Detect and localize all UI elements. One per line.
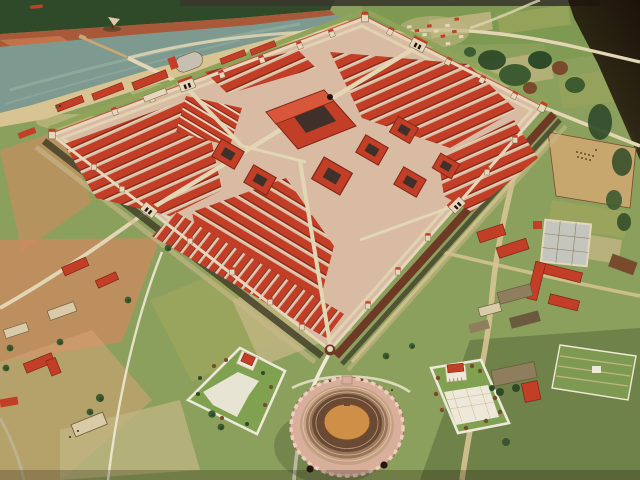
wall-tower: [484, 167, 489, 175]
tree: [3, 365, 10, 372]
tree: [165, 245, 172, 252]
autumn-tree: [552, 61, 568, 75]
tiny-house: [422, 33, 427, 37]
painted-tree: [588, 104, 612, 140]
wall-tower: [395, 267, 400, 275]
painted-tree: [617, 213, 631, 231]
gray-courtyard-building: [541, 220, 591, 267]
tiny-house: [427, 24, 432, 28]
tree: [87, 409, 94, 416]
tiny-house: [407, 25, 412, 29]
wall-tower: [299, 322, 304, 330]
painted-tree: [565, 77, 585, 93]
dark-bush: [502, 438, 510, 446]
tiny-house: [452, 30, 457, 34]
tree: [96, 394, 104, 402]
tree: [57, 339, 64, 346]
north-corner-tower: [362, 12, 369, 22]
painted-tree: [478, 50, 506, 70]
tree: [218, 424, 225, 431]
tiny-house: [446, 42, 451, 46]
entrance-arch: [380, 461, 387, 468]
wall-tower: [365, 301, 370, 309]
north-entrance-box: [342, 376, 352, 384]
wall-tower: [187, 236, 192, 244]
tree: [383, 353, 390, 360]
painted-tree: [606, 190, 622, 210]
painted-tree: [528, 51, 552, 69]
tiny-house: [440, 34, 445, 38]
dark-bush: [489, 385, 495, 391]
arena-floor: [324, 404, 370, 440]
tiny-house: [434, 29, 439, 33]
animal-figure: [69, 436, 71, 438]
west-corner-tower: [49, 129, 56, 139]
garden-shed: [592, 366, 601, 373]
tree: [7, 345, 14, 352]
painted-tree: [464, 47, 476, 57]
tiny-house: [445, 24, 450, 28]
tiny-house: [454, 17, 459, 21]
basilica-arch: [327, 94, 333, 100]
south-corner-tower-top: [327, 346, 333, 352]
bottom-shading: [0, 470, 640, 480]
horse-cart: [59, 105, 61, 107]
painted-tree: [612, 148, 632, 176]
wall-tower: [267, 297, 272, 305]
roman-fortress-model-scene: [0, 0, 640, 480]
tree: [409, 343, 415, 349]
dark-bush: [496, 388, 504, 396]
arena-gate: [344, 402, 350, 406]
tree: [208, 410, 215, 417]
autumn-tree: [523, 82, 537, 94]
animal-figure: [77, 430, 79, 432]
wall-tower: [91, 162, 96, 170]
red-wing: [521, 381, 541, 403]
wall-tower: [119, 184, 124, 192]
tiny-house: [459, 35, 464, 39]
wall-tower: [229, 267, 234, 275]
spectator-figure: [391, 389, 393, 391]
tiny-house: [414, 29, 419, 33]
wall-tower: [425, 233, 430, 241]
classical-temple: [445, 363, 467, 383]
horse-cart: [55, 105, 58, 108]
wall-tower: [512, 135, 517, 143]
vicus-shrine: [533, 221, 542, 229]
dark-bush: [512, 384, 520, 392]
tree: [125, 297, 132, 304]
painted-tree: [499, 64, 531, 86]
spectator-figure: [329, 380, 331, 382]
spectator-figure: [361, 379, 363, 381]
diorama-photo: [0, 0, 640, 480]
